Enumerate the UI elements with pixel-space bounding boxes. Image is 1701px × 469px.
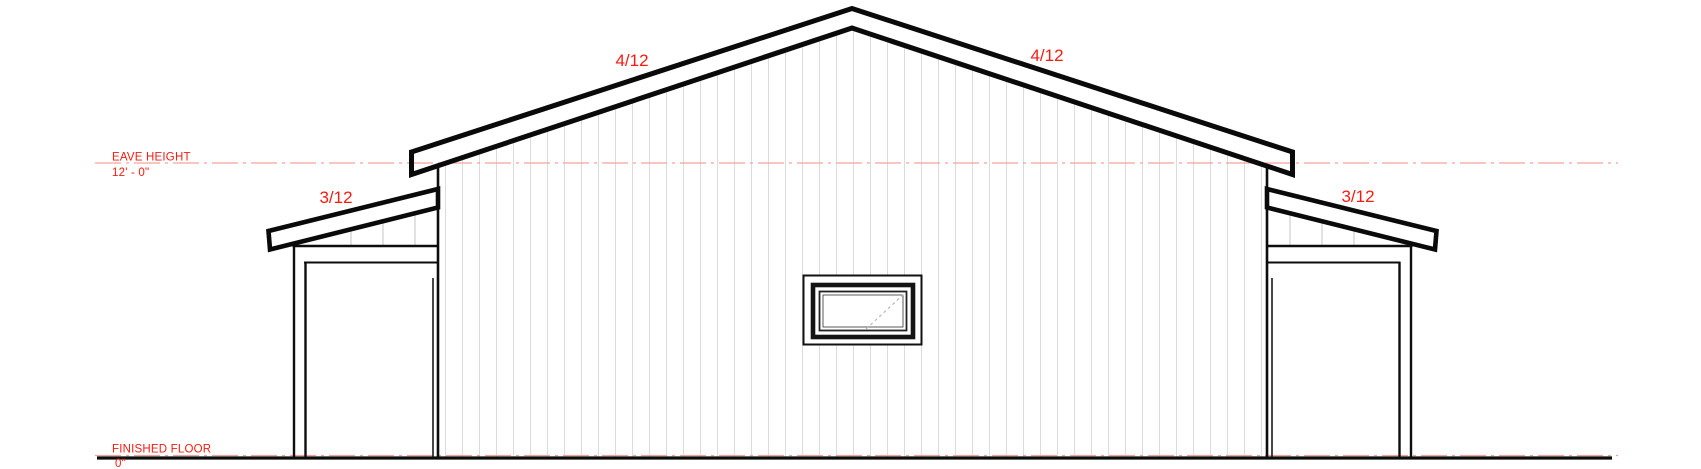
left-leanto-roof-outline <box>269 189 439 250</box>
annotations: EAVE HEIGHT 12' - 0" FINISHED FLOOR 0" 4… <box>112 46 1375 469</box>
elevation-drawing: EAVE HEIGHT 12' - 0" FINISHED FLOOR 0" 4… <box>0 0 1701 469</box>
main-roof-outline <box>412 9 1293 175</box>
leanto-wedge-siding <box>351 213 1354 246</box>
window <box>804 276 922 345</box>
eave-height-value: 12' - 0" <box>112 167 149 179</box>
pitch-label-leanto-left: 3/12 <box>319 188 352 207</box>
pitch-label-main-right: 4/12 <box>1030 46 1063 65</box>
gable-wall-siding <box>446 20 1262 457</box>
finished-floor-label: FINISHED FLOOR <box>112 444 211 456</box>
window-frame <box>813 285 913 337</box>
left-leanto-structure <box>293 246 440 458</box>
eave-height-label: EAVE HEIGHT <box>112 152 191 164</box>
pitch-label-main-left: 4/12 <box>615 51 648 70</box>
pitch-label-leanto-right: 3/12 <box>1341 187 1374 206</box>
right-leanto-structure <box>1266 246 1413 458</box>
finished-floor-value: 0" <box>115 458 126 469</box>
